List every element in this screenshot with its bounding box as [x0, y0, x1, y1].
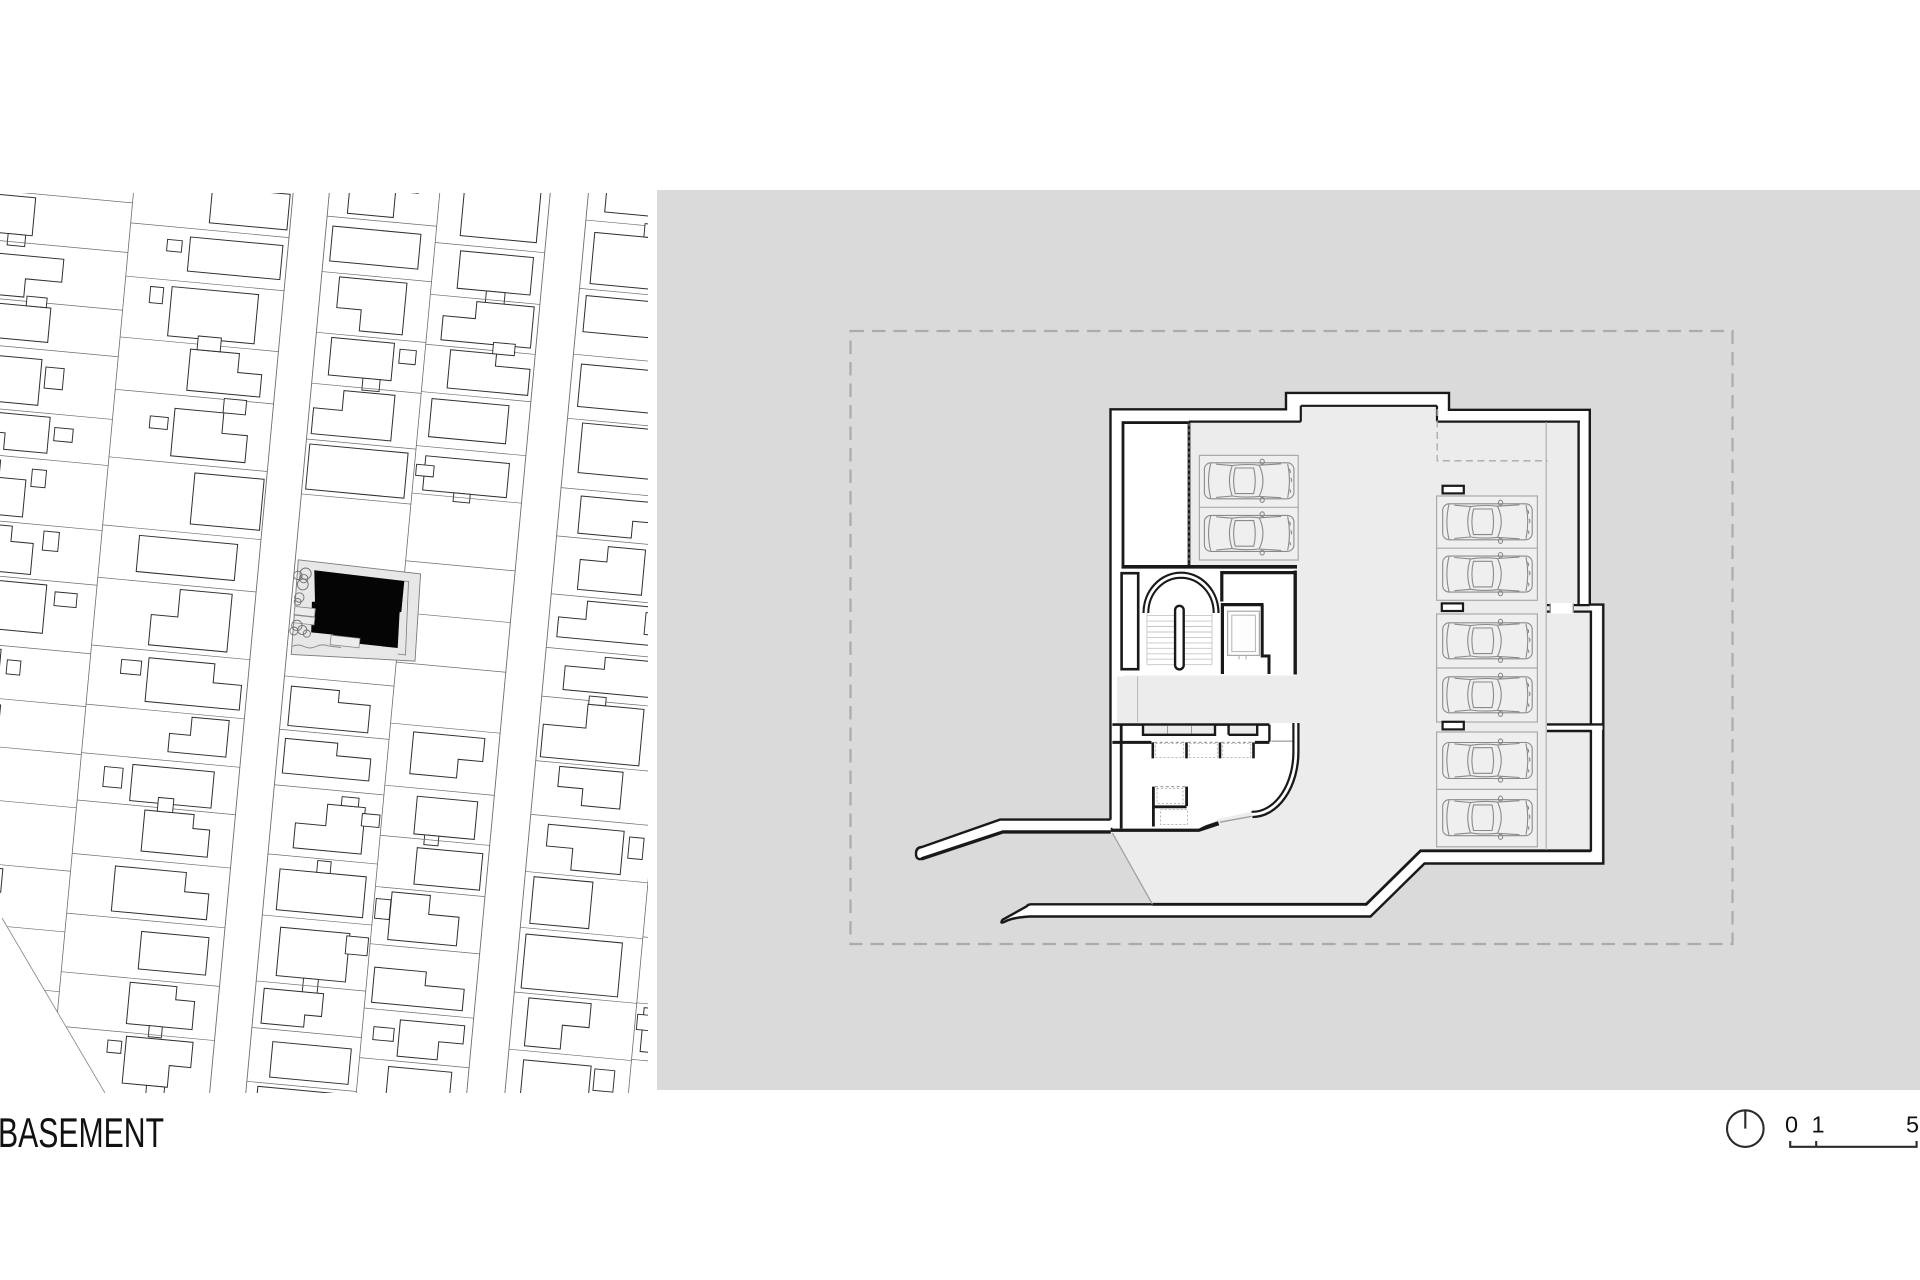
svg-text:5: 5 [1906, 1112, 1919, 1138]
svg-text:1: 1 [1812, 1112, 1825, 1138]
svg-text:0: 0 [1785, 1112, 1798, 1138]
svg-text:BASEMENT: BASEMENT [0, 1109, 164, 1156]
